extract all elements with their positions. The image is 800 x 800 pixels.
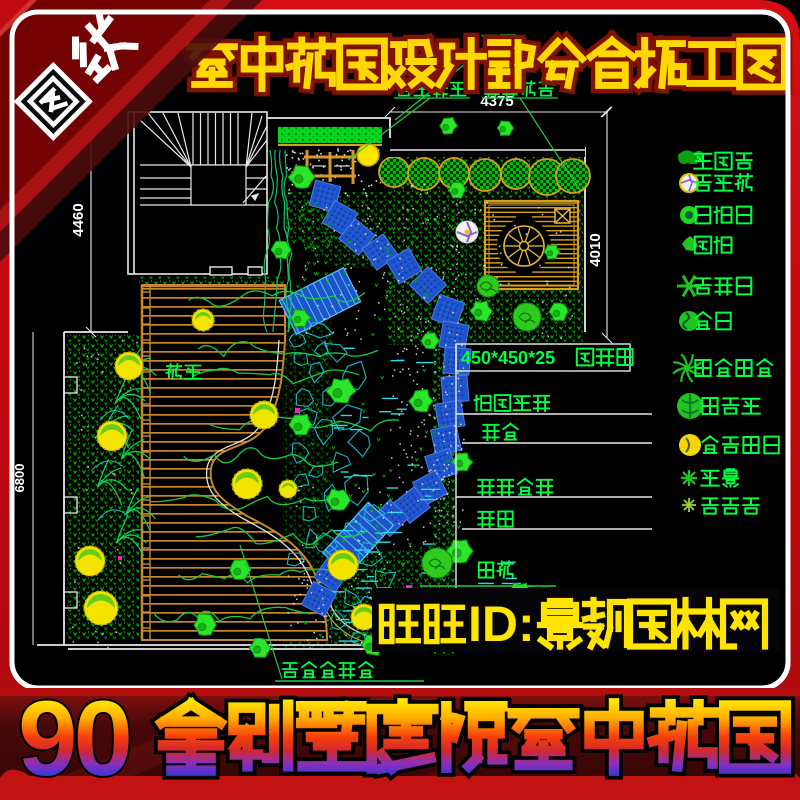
svg-text:4010: 4010 <box>587 233 604 266</box>
svg-text:450*450*25: 450*450*25 <box>461 348 555 368</box>
svg-text:90: 90 <box>18 678 130 798</box>
svg-text:4375: 4375 <box>480 93 513 110</box>
svg-text:ID:: ID: <box>468 596 535 652</box>
svg-text:4460: 4460 <box>70 203 87 236</box>
